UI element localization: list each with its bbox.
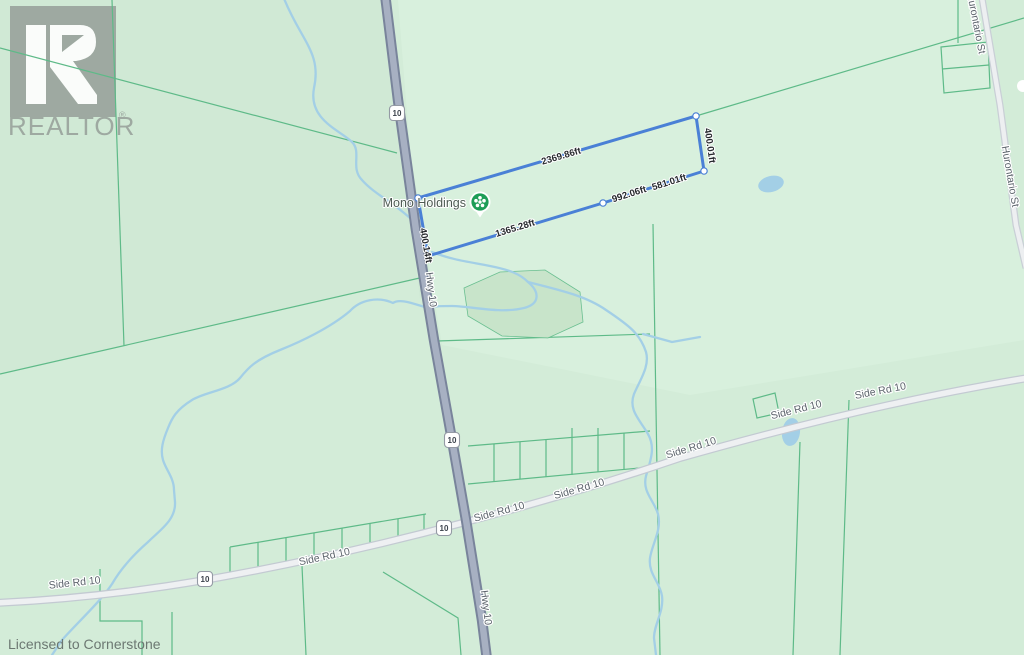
hwy-10-shield: 10 <box>437 521 452 536</box>
hwy-10-shield: 10 <box>390 106 405 121</box>
license-attribution: Licensed to Cornerstone <box>8 636 161 652</box>
land-tint-northeast <box>398 0 1024 395</box>
registered-trademark-symbol: ® <box>119 110 126 120</box>
poi-label: Mono Holdings <box>383 196 466 210</box>
svg-text:10: 10 <box>448 436 457 445</box>
map-svg: REALTOR ® <box>0 0 1024 655</box>
hwy-10-shield: 10 <box>198 572 213 587</box>
hwy-10-shield: 10 <box>445 433 460 448</box>
svg-text:10: 10 <box>201 575 210 584</box>
map-canvas[interactable]: REALTOR ® <box>0 0 1024 655</box>
svg-text:10: 10 <box>440 524 449 533</box>
svg-text:10: 10 <box>393 109 402 118</box>
